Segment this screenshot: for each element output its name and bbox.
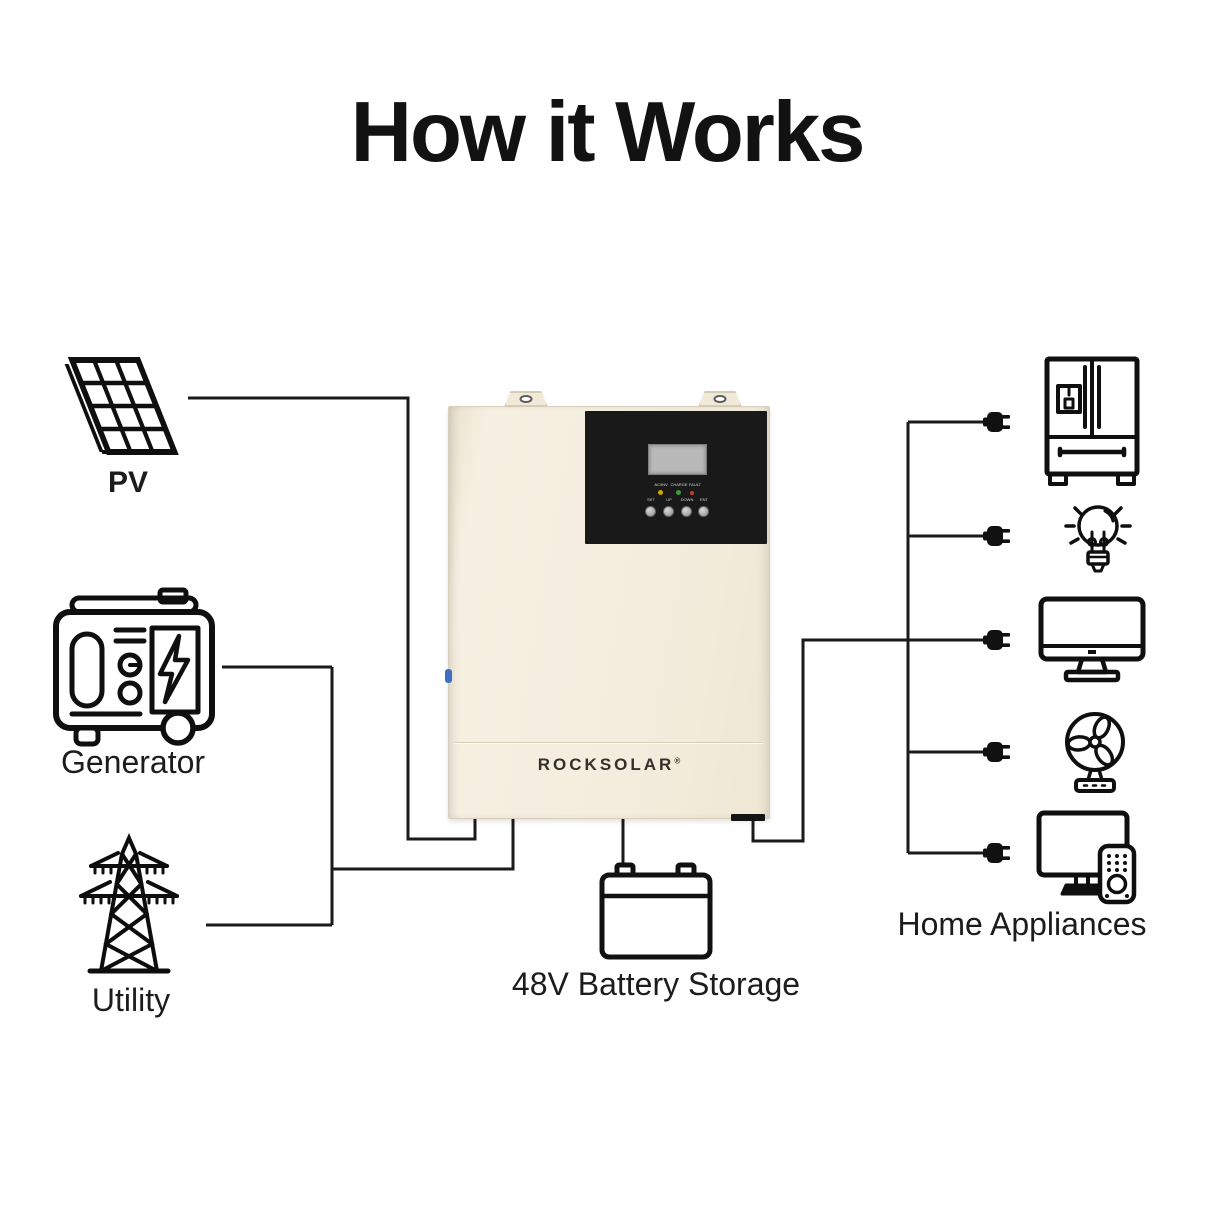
mounting-hole [520, 395, 533, 403]
monitor-icon [1038, 596, 1146, 690]
refrigerator-icon [1044, 356, 1144, 490]
generator-label: Generator [61, 744, 205, 781]
wire-output-feed [753, 640, 908, 841]
trademark-symbol: ® [674, 756, 680, 765]
light-bulb-icon [1058, 498, 1138, 576]
mounting-ear [504, 391, 548, 407]
tv-remote-icon [1036, 810, 1148, 906]
solar-panel-icon [58, 346, 198, 486]
plug-icon [983, 843, 1010, 863]
set-button [645, 506, 656, 517]
led-fault [690, 491, 694, 495]
plug-icon [983, 412, 1010, 432]
up-button [663, 506, 674, 517]
battery-label: 48V Battery Storage [512, 966, 800, 1003]
brand-text: ROCKSOLAR [538, 755, 675, 774]
how-it-works-diagram: How it Works [0, 0, 1214, 1214]
utility-label: Utility [92, 982, 170, 1019]
mounting-hole [714, 395, 727, 403]
lcd-screen [648, 444, 707, 475]
pv-label: PV [108, 466, 148, 500]
wire-trunk-to-inverter [332, 815, 513, 869]
fan-icon [1062, 712, 1128, 796]
ent-button [698, 506, 709, 517]
case-seam [455, 742, 763, 743]
mounting-ear [698, 391, 742, 407]
button-label: ENT [693, 497, 715, 502]
led-label: FAULT [684, 482, 706, 487]
brand-logo: ROCKSOLAR® [449, 755, 769, 775]
plug-icon [983, 526, 1010, 546]
down-button [681, 506, 692, 517]
plug-icon [983, 630, 1010, 650]
appliances-label: Home Appliances [897, 906, 1146, 943]
inverter-unit: AC/INV CHARGE FAULT SET UP DOWN ENT ROCK… [448, 406, 770, 819]
battery-icon [596, 858, 716, 962]
side-clip [445, 669, 452, 683]
bottom-terminal [731, 814, 765, 821]
led-ac-inv [658, 490, 663, 495]
generator-icon [48, 588, 220, 756]
plug-icon [983, 742, 1010, 762]
led-charge [676, 490, 681, 495]
utility-tower-icon [54, 826, 204, 976]
inverter-display-panel: AC/INV CHARGE FAULT SET UP DOWN ENT [585, 411, 767, 544]
